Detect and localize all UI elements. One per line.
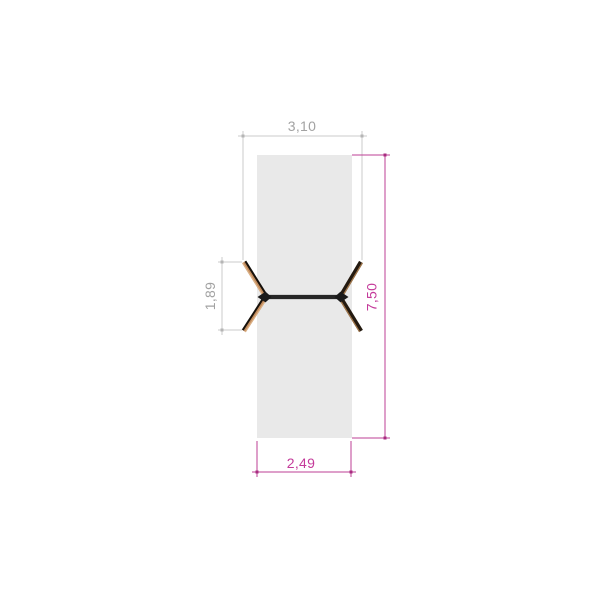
marker-dot [361, 135, 364, 138]
dimension-left-label: 1,89 [202, 282, 218, 310]
technical-drawing-canvas: 3,10 1,89 7,50 2,49 [0, 0, 600, 600]
marker-dot [384, 437, 387, 440]
marker-dot [384, 154, 387, 157]
marker-dot [221, 261, 224, 264]
marker-dot [350, 471, 353, 474]
dimension-right-label: 7,50 [364, 283, 380, 311]
dimensioned-drawing: 3,10 1,89 7,50 2,49 [0, 0, 600, 600]
marker-dot [242, 135, 245, 138]
marker-dot [221, 329, 224, 332]
dimension-bottom-label: 2,49 [287, 455, 315, 471]
dimension-top-label: 3,10 [288, 118, 316, 134]
marker-dot [256, 471, 259, 474]
